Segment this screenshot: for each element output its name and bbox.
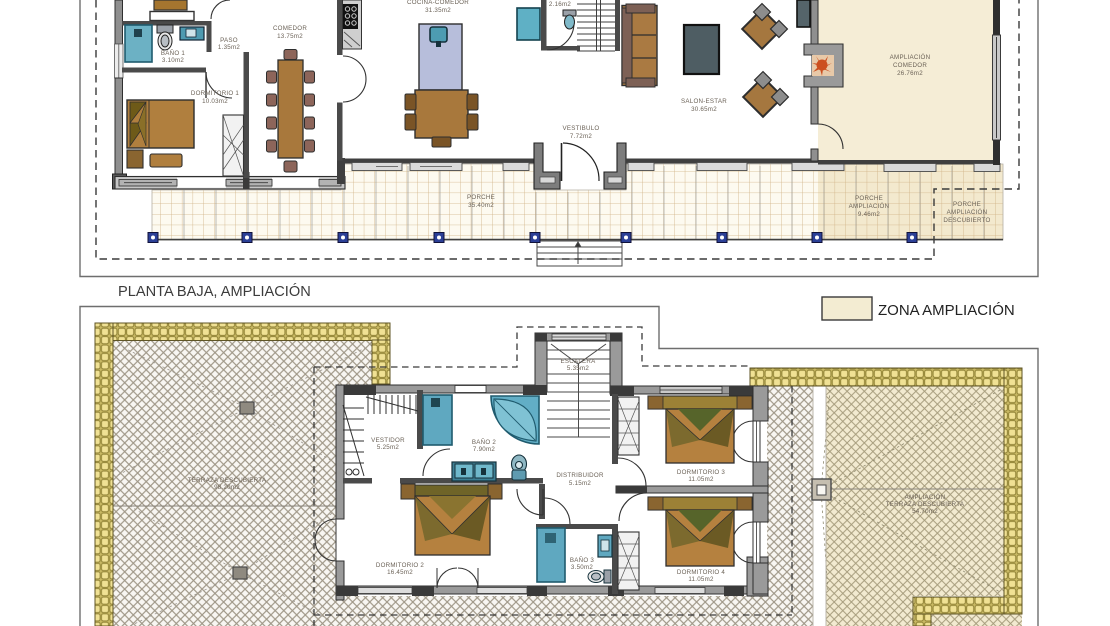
svg-text:PORCHE: PORCHE xyxy=(953,201,981,208)
svg-text:11.05m2: 11.05m2 xyxy=(688,476,714,483)
svg-text:AMPLIACIÓN: AMPLIACIÓN xyxy=(849,203,890,210)
svg-text:3.50m2: 3.50m2 xyxy=(571,564,593,571)
svg-text:DISTRIBUIDOR: DISTRIBUIDOR xyxy=(556,472,604,479)
svg-text:BAÑO 3: BAÑO 3 xyxy=(570,557,595,564)
svg-text:5.35m2: 5.35m2 xyxy=(567,365,589,372)
svg-text:AMPLIACIÓN: AMPLIACIÓN xyxy=(905,494,946,501)
svg-text:COCINA-COMEDOR: COCINA-COMEDOR xyxy=(407,0,469,6)
svg-text:DORMITORIO 3: DORMITORIO 3 xyxy=(677,469,726,476)
svg-text:5.15m2: 5.15m2 xyxy=(569,480,591,487)
svg-text:31.35m2: 31.35m2 xyxy=(425,7,451,14)
svg-text:TERRAZA DESCUBIERTA: TERRAZA DESCUBIERTA xyxy=(886,501,965,508)
svg-text:7.90m2: 7.90m2 xyxy=(473,446,495,453)
svg-text:TERRAZA DESCUBIERTA: TERRAZA DESCUBIERTA xyxy=(188,477,267,484)
svg-text:30.65m2: 30.65m2 xyxy=(691,106,717,113)
svg-text:3.10m2: 3.10m2 xyxy=(162,57,184,64)
svg-text:2.16m2: 2.16m2 xyxy=(549,1,571,8)
svg-text:BAÑO 1: BAÑO 1 xyxy=(161,50,186,57)
svg-text:DORMITORIO 4: DORMITORIO 4 xyxy=(677,569,726,576)
svg-text:COMEDOR: COMEDOR xyxy=(273,25,307,32)
svg-text:11.05m2: 11.05m2 xyxy=(688,576,714,583)
svg-text:SALON-ESTAR: SALON-ESTAR xyxy=(681,98,727,105)
svg-text:PORCHE: PORCHE xyxy=(467,194,495,201)
svg-text:35.40m2: 35.40m2 xyxy=(468,202,494,209)
svg-text:9.46m2: 9.46m2 xyxy=(858,211,880,218)
svg-text:5.25m2: 5.25m2 xyxy=(377,444,399,451)
svg-text:98.20m2: 98.20m2 xyxy=(214,484,240,491)
svg-text:13.75m2: 13.75m2 xyxy=(277,33,303,40)
svg-text:16.45m2: 16.45m2 xyxy=(387,569,413,576)
svg-text:BAÑO 2: BAÑO 2 xyxy=(472,439,497,446)
svg-text:AMPLIACIÓN: AMPLIACIÓN xyxy=(947,209,988,216)
svg-text:PORCHE: PORCHE xyxy=(855,195,883,202)
svg-text:54.70m2: 54.70m2 xyxy=(912,508,938,515)
svg-text:DORMITORIO 1: DORMITORIO 1 xyxy=(191,90,240,97)
svg-text:PASO: PASO xyxy=(220,37,238,44)
svg-text:DORMITORIO 2: DORMITORIO 2 xyxy=(376,562,425,569)
svg-text:26.76m2: 26.76m2 xyxy=(897,70,923,77)
svg-text:AMPLIACIÓN: AMPLIACIÓN xyxy=(890,54,931,61)
svg-text:VESTIDOR: VESTIDOR xyxy=(371,437,405,444)
svg-text:PLANTA BAJA, AMPLIACIÓN: PLANTA BAJA, AMPLIACIÓN xyxy=(118,283,311,300)
svg-text:ZONA AMPLIACIÓN: ZONA AMPLIACIÓN xyxy=(878,302,1015,319)
svg-text:1.35m2: 1.35m2 xyxy=(218,44,240,51)
svg-text:ESCALERA: ESCALERA xyxy=(560,358,596,365)
svg-text:10.03m2: 10.03m2 xyxy=(202,98,228,105)
svg-text:DESCUBIERTO: DESCUBIERTO xyxy=(943,217,990,224)
svg-text:COMEDOR: COMEDOR xyxy=(893,62,927,69)
svg-text:VESTIBULO: VESTIBULO xyxy=(563,125,600,132)
svg-text:7.72m2: 7.72m2 xyxy=(570,133,592,140)
